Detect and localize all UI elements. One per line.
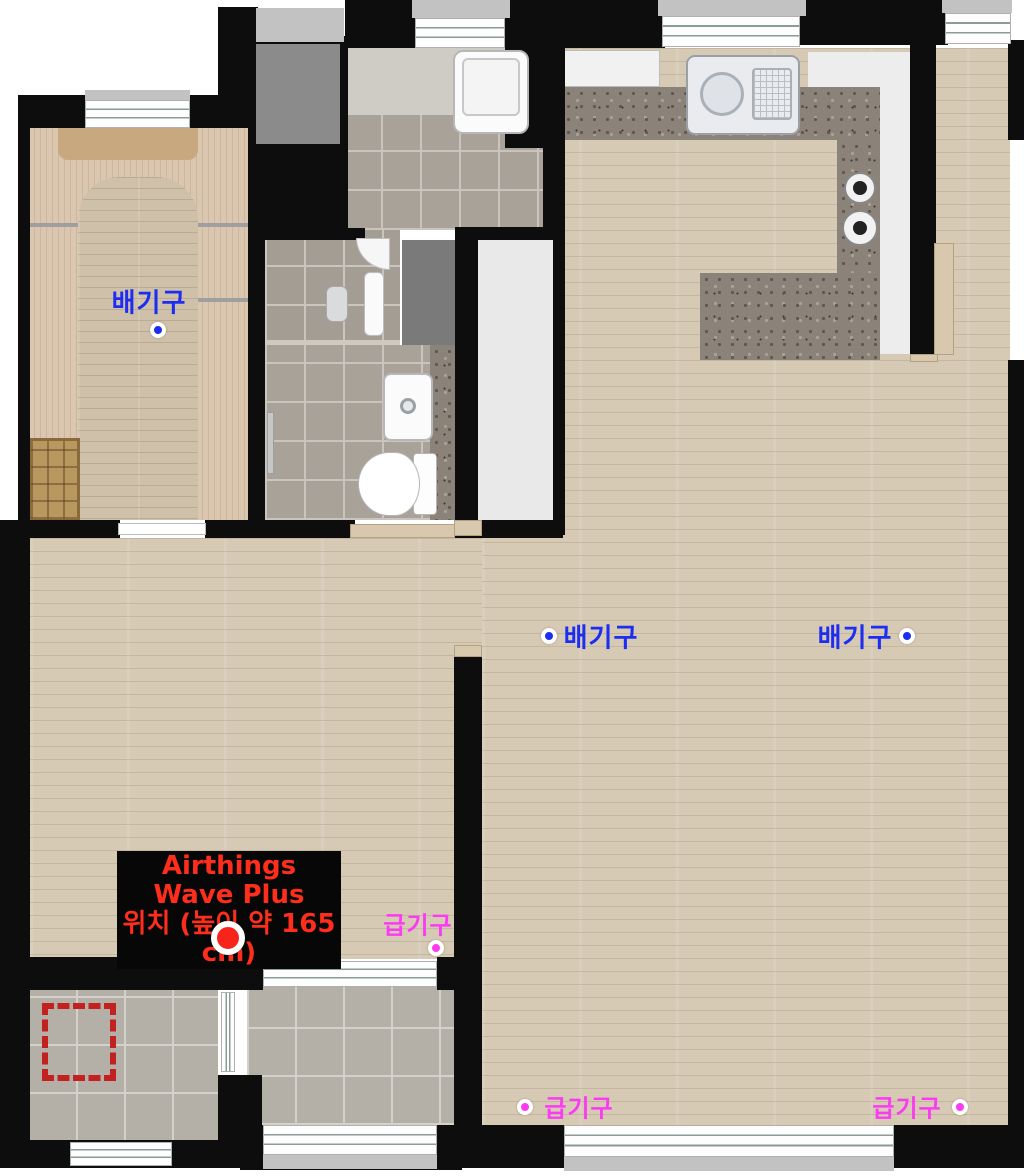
kitchen-side-strip <box>878 87 912 354</box>
exhaust-vent-label: 배기구 <box>112 283 187 320</box>
balcony-door-leaf <box>221 992 235 1072</box>
duct-cap <box>256 8 344 42</box>
wall <box>454 655 482 1125</box>
wall <box>28 520 120 538</box>
window <box>662 16 800 47</box>
kitchen-counter-side <box>837 140 880 273</box>
wall <box>553 235 565 535</box>
dressing-room-walkway <box>78 177 198 520</box>
refrigerator <box>562 50 660 87</box>
window-cap <box>412 0 510 18</box>
kitchen-island <box>700 273 880 360</box>
window <box>945 13 1011 44</box>
wall <box>543 48 565 240</box>
wall <box>0 520 30 1168</box>
device-location-dot-icon <box>211 921 245 955</box>
wall <box>910 42 936 354</box>
wall <box>345 0 420 48</box>
wardrobe-headboard <box>58 128 198 160</box>
door-post <box>454 520 482 536</box>
laundry-sink-basin <box>462 58 520 116</box>
supply-vent-dot-icon <box>952 1099 968 1115</box>
wardrobe-divider <box>198 223 248 227</box>
window-cap <box>942 0 1012 13</box>
exhaust-vent-dot-icon <box>541 628 557 644</box>
wardrobe-divider <box>198 298 248 302</box>
exhaust-vent-dot-icon <box>899 628 915 644</box>
door-post <box>454 645 482 657</box>
exhaust-vent-label: 배기구 <box>818 618 893 655</box>
dresser <box>28 438 80 522</box>
door-threshold <box>910 354 938 362</box>
air-duct <box>402 240 455 345</box>
window <box>564 1125 894 1157</box>
wall <box>455 227 478 533</box>
door-leaf <box>118 523 206 535</box>
stove-burner <box>844 172 876 204</box>
window-apron <box>564 1157 894 1171</box>
wall <box>543 0 665 48</box>
wall <box>1008 40 1024 140</box>
exhaust-vent-dot-icon <box>150 322 166 338</box>
supply-vent-label: 급기구 <box>383 906 452 941</box>
toilet-bowl <box>358 452 420 516</box>
wall <box>455 227 563 240</box>
wall <box>205 520 355 538</box>
wardrobe-divider <box>28 223 78 227</box>
exhaust-vent-label: 배기구 <box>564 618 639 655</box>
stove-burner <box>842 210 878 246</box>
candidate-zone-dashed-box <box>42 1003 116 1081</box>
supply-vent-dot-icon <box>517 1099 533 1115</box>
bathroom-sink-faucet <box>400 398 416 414</box>
towel-bar <box>267 412 274 474</box>
device-callout-line1: Airthings Wave Plus <box>121 852 337 910</box>
door-threshold <box>350 524 455 538</box>
supply-vent-dot-icon <box>428 940 444 956</box>
apartment-floor-plan: 배기구 배기구 배기구 급기구 급기구 급기구 Airthings Wave P… <box>0 0 1024 1176</box>
wall <box>18 95 30 520</box>
entrance-hall <box>478 235 555 520</box>
kitchen-sink-rack <box>752 68 792 120</box>
window-cap <box>658 0 806 16</box>
shower-column <box>364 272 384 336</box>
air-duct <box>256 44 340 144</box>
wall <box>437 957 482 990</box>
wall <box>253 228 365 240</box>
sliding-door <box>934 243 954 355</box>
kitchen-side-strip <box>808 52 912 87</box>
window <box>263 1125 437 1155</box>
window <box>415 18 505 48</box>
shower-mirror <box>326 286 348 322</box>
window <box>70 1142 172 1166</box>
supply-vent-label: 급기구 <box>544 1089 613 1124</box>
window <box>85 100 190 128</box>
supply-vent-label: 급기구 <box>872 1089 941 1124</box>
window-apron <box>263 1155 437 1169</box>
kitchen-sink-basin <box>700 72 744 116</box>
wall <box>1008 360 1024 1168</box>
wall <box>800 0 948 45</box>
balcony-middle-floor <box>247 987 463 1125</box>
